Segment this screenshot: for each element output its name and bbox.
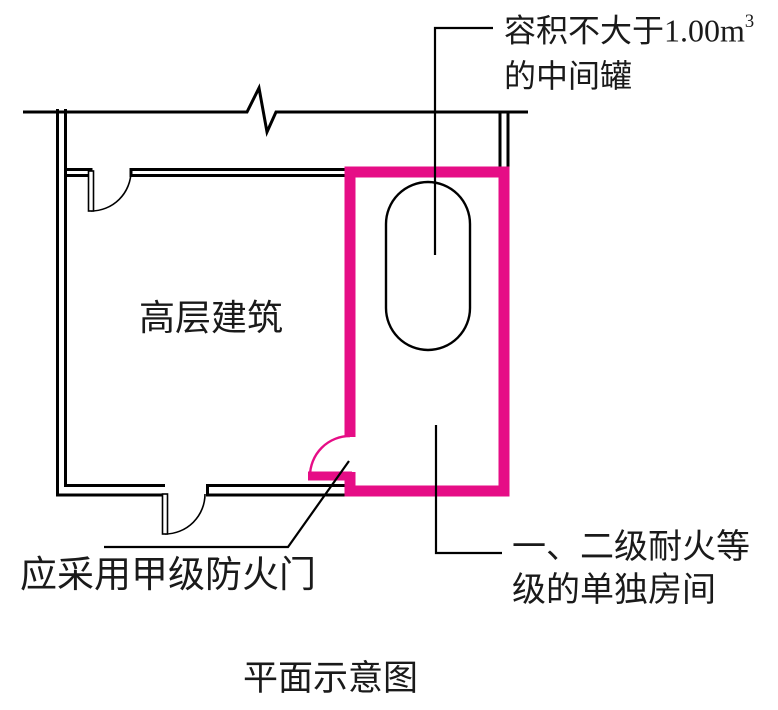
bottom-door-leaf — [163, 494, 168, 534]
room-label: 一、二级耐火等 级的单独房间 — [512, 526, 750, 612]
caption: 平面示意图 — [243, 658, 418, 700]
interior-wall — [64, 168, 346, 177]
building-label: 高层建筑 — [139, 297, 283, 340]
left-wall — [58, 109, 66, 497]
interior-door-leaf — [89, 171, 94, 211]
fire-door-label: 应采用甲级防火门 — [20, 554, 316, 598]
bottom-wall-left-segment — [56, 486, 165, 496]
bottom-door-swing-arc — [165, 494, 205, 534]
tank-label-line2: 的中间罐 — [504, 54, 754, 99]
tank-label-line1: 容积不大于1.00m3 — [504, 2, 754, 54]
room-label-line2: 级的单独房间 — [512, 569, 750, 612]
fire-door-swing-arc — [310, 436, 350, 476]
floor-plan-figure: 容积不大于1.00m3 的中间罐 高层建筑 应采用甲级防火门 一、二级耐火等 级… — [0, 0, 778, 710]
tank-volume-superscript: 3 — [745, 11, 754, 32]
top-wall-with-break-symbol — [23, 88, 528, 132]
tank-label: 容积不大于1.00m3 的中间罐 — [504, 2, 754, 99]
interior-door-swing-arc — [91, 171, 131, 211]
intermediate-tank — [386, 182, 470, 350]
room-label-line1: 一、二级耐火等 — [512, 526, 750, 569]
right-wall — [500, 111, 508, 168]
